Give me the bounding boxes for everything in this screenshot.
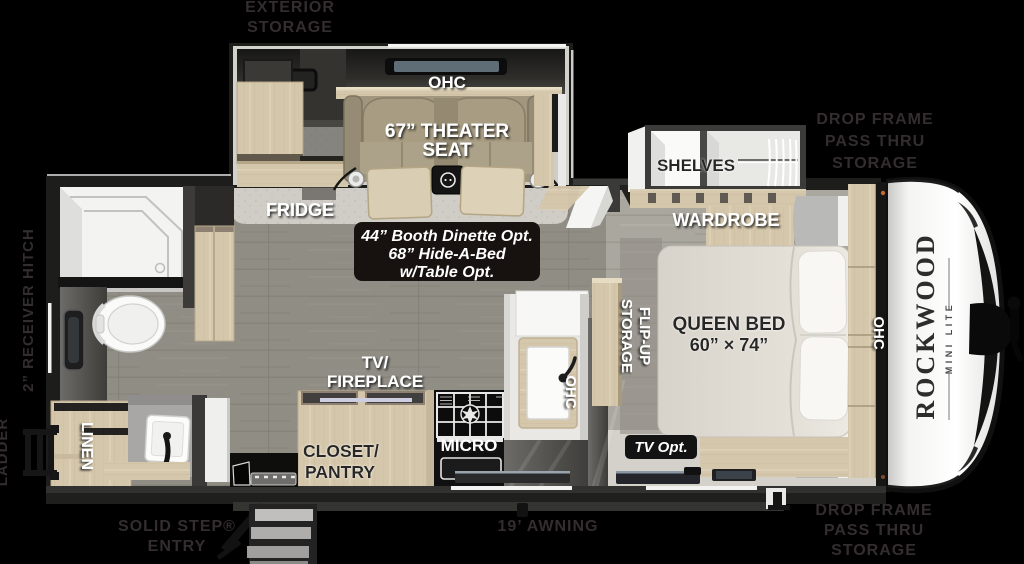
svg-text:FRIDGE: FRIDGE	[266, 200, 334, 220]
svg-text:TV Opt.: TV Opt.	[634, 439, 687, 456]
svg-text:FLIP-UP: FLIP-UP	[636, 307, 653, 365]
svg-text:STORAGE: STORAGE	[247, 19, 333, 36]
svg-text:OHC: OHC	[428, 73, 466, 92]
svg-text:LADDER: LADDER	[0, 418, 11, 487]
svg-text:OHC: OHC	[870, 316, 887, 350]
svg-text:MICRO: MICRO	[441, 436, 498, 455]
svg-text:DROP FRAME: DROP FRAME	[816, 111, 933, 128]
svg-text:TV/: TV/	[362, 353, 389, 372]
svg-text:68” Hide-A-Bed: 68” Hide-A-Bed	[388, 246, 507, 263]
svg-text:STORAGE: STORAGE	[618, 299, 635, 373]
svg-text:19’ AWNING: 19’ AWNING	[498, 518, 599, 535]
svg-text:EXTERIOR: EXTERIOR	[245, 0, 335, 16]
svg-text:2” RECEIVER HITCH: 2” RECEIVER HITCH	[20, 228, 37, 392]
svg-text:ENTRY: ENTRY	[148, 538, 207, 555]
svg-text:PASS THRU: PASS THRU	[825, 133, 925, 150]
svg-text:DROP FRAME: DROP FRAME	[815, 502, 932, 519]
svg-text:FIREPLACE: FIREPLACE	[327, 372, 423, 391]
svg-text:STORAGE: STORAGE	[831, 542, 917, 559]
svg-text:60” × 74”: 60” × 74”	[690, 335, 769, 355]
svg-text:SOLID STEP®: SOLID STEP®	[118, 518, 236, 535]
svg-text:67” THEATER: 67” THEATER	[385, 121, 510, 142]
svg-text:w/Table Opt.: w/Table Opt.	[400, 264, 495, 281]
svg-text:MINI LITE: MINI LITE	[944, 302, 954, 375]
svg-text:PASS THRU: PASS THRU	[824, 522, 924, 539]
svg-text:LINEN: LINEN	[78, 422, 95, 470]
svg-text:OHC: OHC	[562, 375, 579, 409]
svg-text:44” Booth Dinette Opt.: 44” Booth Dinette Opt.	[360, 228, 533, 245]
svg-text:ROCKWOOD: ROCKWOOD	[911, 232, 940, 419]
svg-text:CLOSET/: CLOSET/	[303, 441, 379, 461]
svg-text:SHELVES: SHELVES	[657, 156, 735, 175]
svg-text:SEAT: SEAT	[422, 140, 472, 161]
svg-text:STORAGE: STORAGE	[832, 155, 918, 172]
svg-text:WARDROBE: WARDROBE	[673, 210, 780, 230]
svg-text:PANTRY: PANTRY	[305, 462, 375, 482]
svg-text:QUEEN BED: QUEEN BED	[673, 314, 786, 335]
